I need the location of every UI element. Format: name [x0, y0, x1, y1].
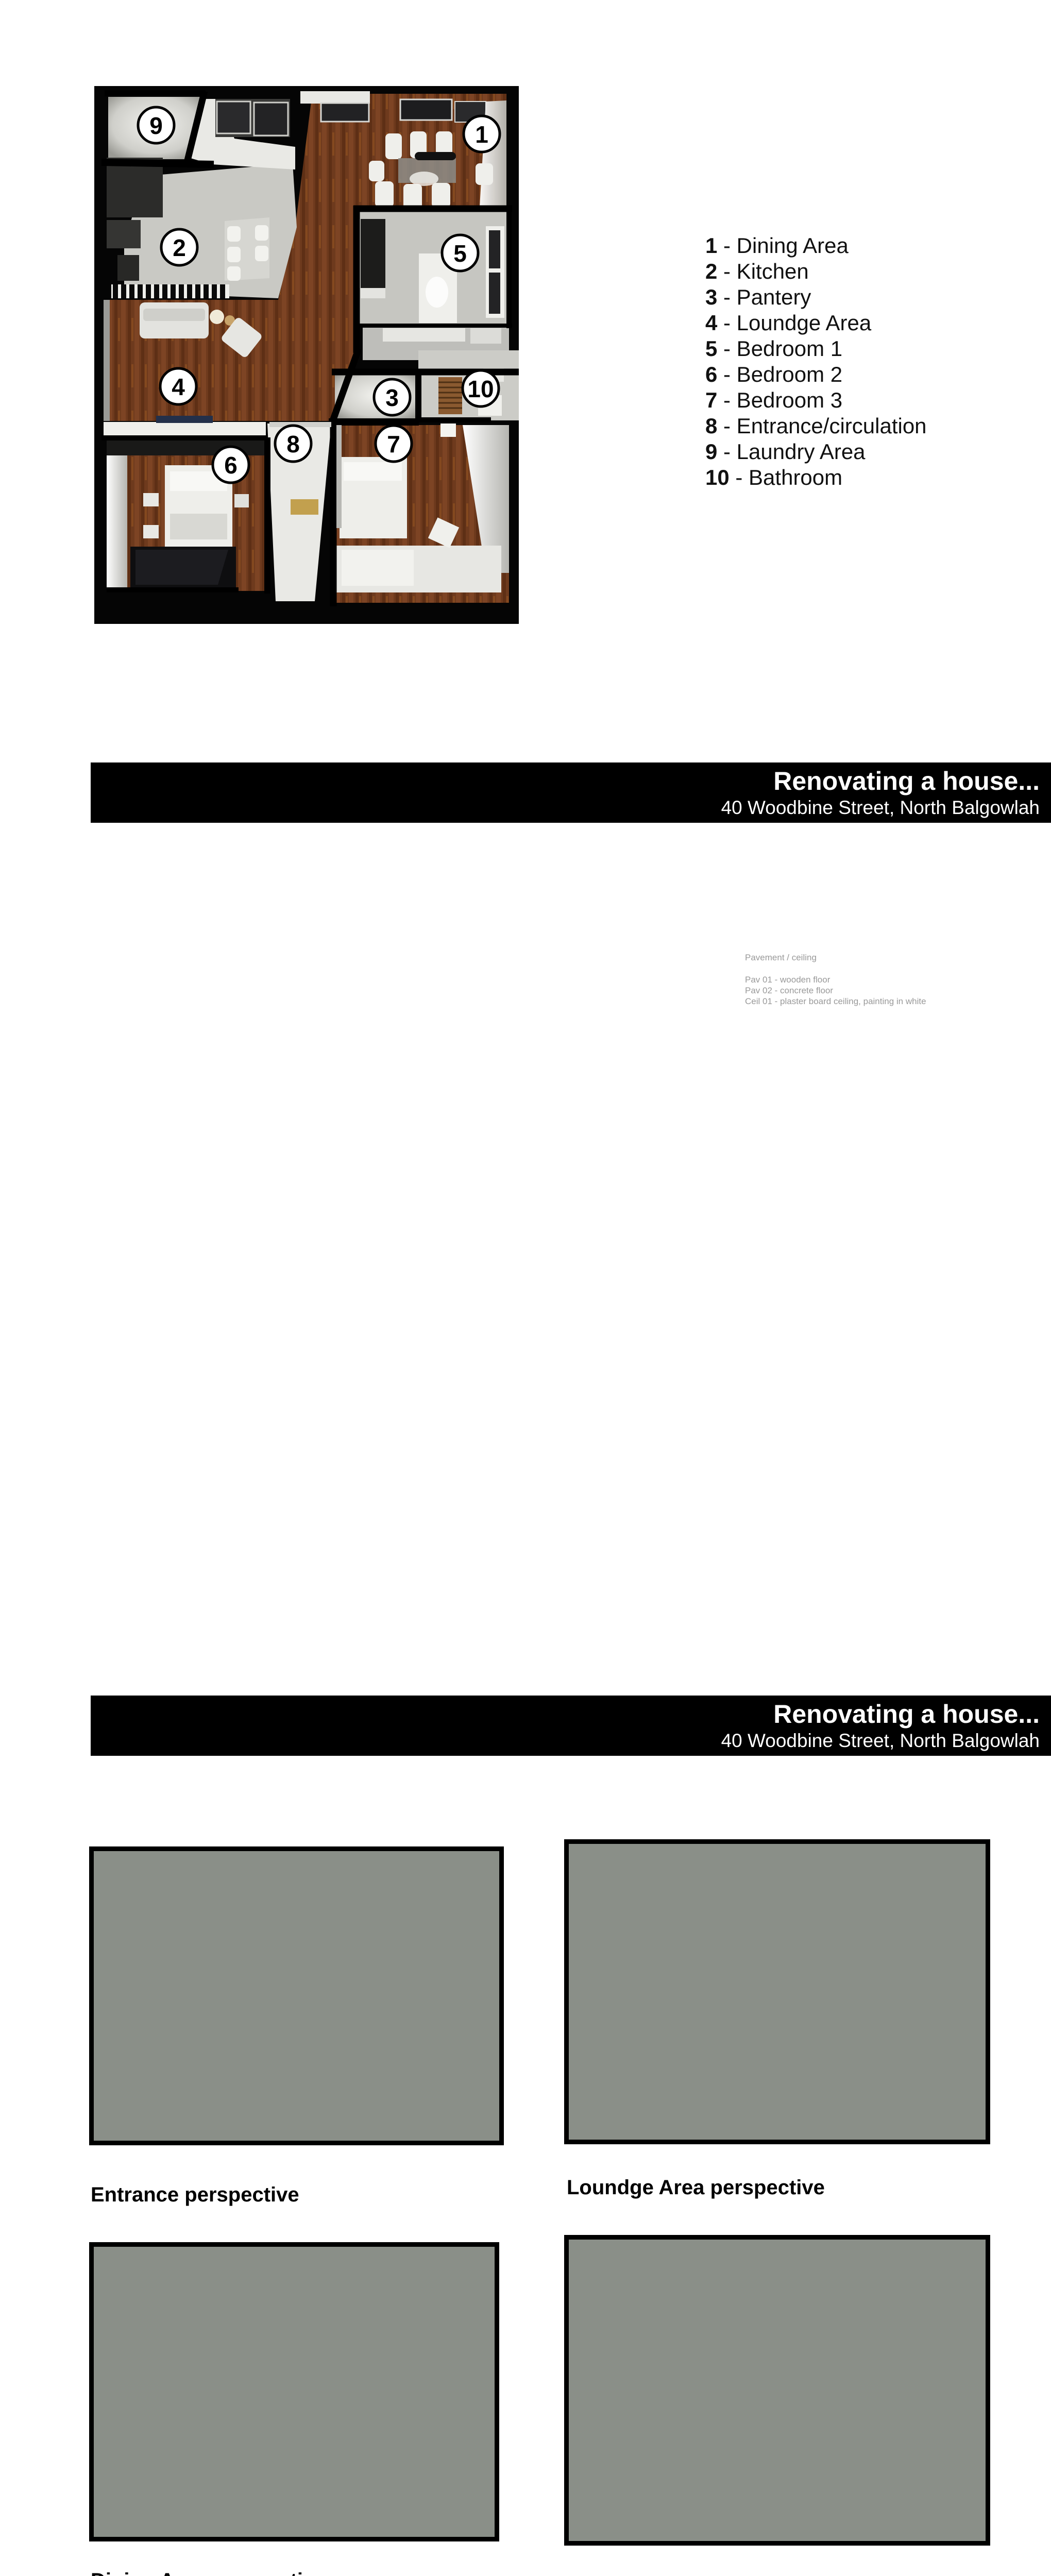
svg-text:3: 3	[385, 384, 399, 411]
svg-text:8: 8	[286, 431, 300, 457]
svg-text:10: 10	[467, 376, 494, 402]
svg-text:1: 1	[475, 121, 488, 148]
svg-text:7: 7	[387, 431, 400, 457]
svg-text:4: 4	[172, 374, 185, 400]
svg-text:6: 6	[224, 452, 238, 479]
svg-text:2: 2	[173, 234, 186, 261]
svg-text:9: 9	[149, 112, 163, 139]
svg-text:5: 5	[453, 240, 467, 267]
